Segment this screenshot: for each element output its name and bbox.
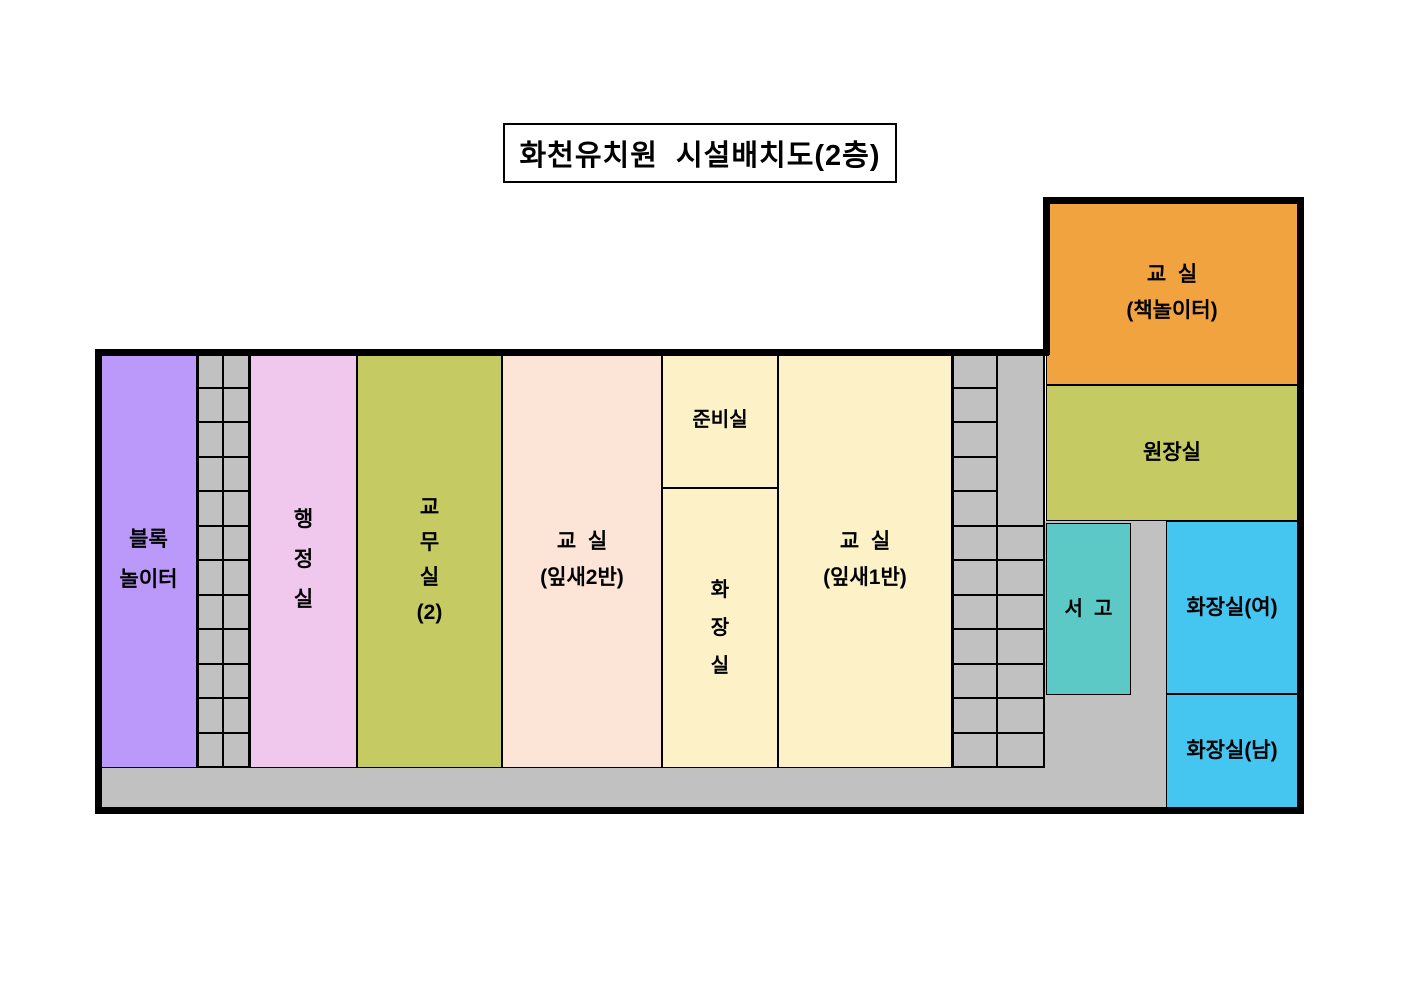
stair-step: [198, 629, 223, 664]
room-label-line: (2): [417, 595, 443, 630]
stair-step: [198, 526, 223, 561]
stair-step: [223, 560, 249, 595]
stair-step: [223, 491, 249, 526]
room-label-line: 서 고: [1065, 592, 1113, 626]
stair-step: [223, 664, 249, 699]
stair-step: [953, 388, 997, 423]
room-restroom-men: 화장실(남): [1166, 694, 1298, 808]
room-label: 블록놀이터: [120, 520, 178, 600]
stair-step: [223, 526, 249, 561]
stair-step: [198, 491, 223, 526]
room-label: 준비실: [692, 403, 747, 437]
room-label-line: 실: [294, 580, 313, 620]
stair-step: [223, 698, 249, 733]
stair-step: [198, 560, 223, 595]
room-book-storage: 서 고: [1046, 523, 1131, 695]
room-label-line: 교 실: [1126, 257, 1217, 293]
outer-wall-left: [95, 349, 102, 814]
room-block-playroom: 블록놀이터: [100, 352, 197, 768]
stair-step: [997, 595, 1044, 630]
room-label-line: 행: [294, 500, 313, 540]
room-label-line: 정: [294, 540, 313, 580]
stairs-right: [952, 352, 1045, 768]
stair-step: [953, 698, 997, 733]
room-label-line: (책놀이터): [1126, 293, 1217, 329]
stair-step: [223, 629, 249, 664]
stair-step: [198, 457, 223, 492]
room-director-office: 원장실: [1046, 385, 1298, 521]
stair-step: [198, 733, 223, 768]
stair-step: [953, 733, 997, 768]
outer-wall-wing-top: [1043, 197, 1304, 204]
room-classroom-book: 교 실(책놀이터): [1046, 200, 1298, 385]
stair-step: [223, 353, 249, 388]
room-label: 원장실: [1143, 436, 1201, 470]
outer-wall-right: [1297, 197, 1304, 814]
room-label: 교 실(책놀이터): [1126, 257, 1217, 329]
stair-step: [223, 733, 249, 768]
stair-step: [953, 526, 997, 561]
stair-step: [953, 422, 997, 457]
room-teachers-office: 교무실(2): [357, 352, 502, 768]
page-title-text: 화천유치원 시설배치도(2층): [519, 132, 880, 174]
room-label: 화장실(여): [1186, 591, 1277, 625]
stair-step: [997, 526, 1044, 561]
stair-step: [198, 698, 223, 733]
room-label-line: 원장실: [1143, 436, 1201, 470]
stairs-left: [197, 352, 250, 768]
room-label: 교 실(잎새2반): [540, 524, 624, 596]
outer-wall-wing-left: [1043, 197, 1050, 355]
room-label-line: 블록: [120, 520, 178, 560]
stair-step: [953, 491, 997, 526]
room-label: 서 고: [1065, 592, 1113, 626]
room-label-line: 화: [711, 571, 729, 609]
room-prep-room: 준비실: [662, 352, 778, 488]
stair-step: [198, 388, 223, 423]
room-label-line: 화장실(여): [1186, 591, 1277, 625]
stair-step: [953, 664, 997, 699]
room-label-line: 교: [417, 490, 443, 525]
room-admin-office: 행정실: [250, 352, 357, 768]
room-label-line: 교 실: [540, 524, 624, 560]
room-label-line: 실: [417, 560, 443, 595]
room-label-line: 무: [417, 525, 443, 560]
stair-step: [997, 698, 1044, 733]
room-restroom-women: 화장실(여): [1166, 521, 1298, 694]
room-label: 화장실(남): [1186, 734, 1277, 768]
stair-step: [223, 422, 249, 457]
outer-wall-top-main: [95, 349, 1049, 356]
corridor-bottom: [101, 768, 1166, 808]
room-label-line: 화장실(남): [1186, 734, 1277, 768]
stair-step: [997, 560, 1044, 595]
stair-step: [198, 664, 223, 699]
room-label-line: 준비실: [692, 403, 747, 437]
room-restroom-inner: 화장실: [662, 488, 778, 768]
stair-step: [198, 353, 223, 388]
stair-step: [953, 595, 997, 630]
stair-step: [997, 629, 1044, 664]
room-classroom-ipsae2: 교 실(잎새2반): [502, 352, 662, 768]
room-label-line: 교 실: [823, 524, 907, 560]
room-label-line: 놀이터: [120, 560, 178, 600]
outer-wall-bottom: [95, 807, 1304, 814]
room-label-line: (잎새2반): [540, 560, 624, 596]
stair-step: [997, 733, 1044, 768]
page-title: 화천유치원 시설배치도(2층): [503, 123, 897, 183]
stair-step: [997, 664, 1044, 699]
stair-step: [198, 422, 223, 457]
stair-step: [953, 629, 997, 664]
room-label-line: (잎새1반): [823, 560, 907, 596]
room-label: 행정실: [294, 500, 313, 620]
stair-step: [953, 457, 997, 492]
stair-step: [223, 595, 249, 630]
room-label: 교무실(2): [417, 490, 443, 630]
stair-step: [198, 595, 223, 630]
room-classroom-ipsae1: 교 실(잎새1반): [778, 352, 952, 768]
stair-step: [223, 388, 249, 423]
room-label-line: 실: [711, 647, 729, 685]
stair-step: [953, 353, 997, 388]
floor-plan: 화천유치원 시설배치도(2층) 블록놀이터행정실교무실(2)교 실(잎새2반)준…: [0, 0, 1403, 992]
stair-landing: [997, 353, 1044, 526]
stair-step: [953, 560, 997, 595]
stair-step: [223, 457, 249, 492]
room-label: 교 실(잎새1반): [823, 524, 907, 596]
room-label-line: 장: [711, 609, 729, 647]
room-label: 화장실: [711, 571, 729, 685]
